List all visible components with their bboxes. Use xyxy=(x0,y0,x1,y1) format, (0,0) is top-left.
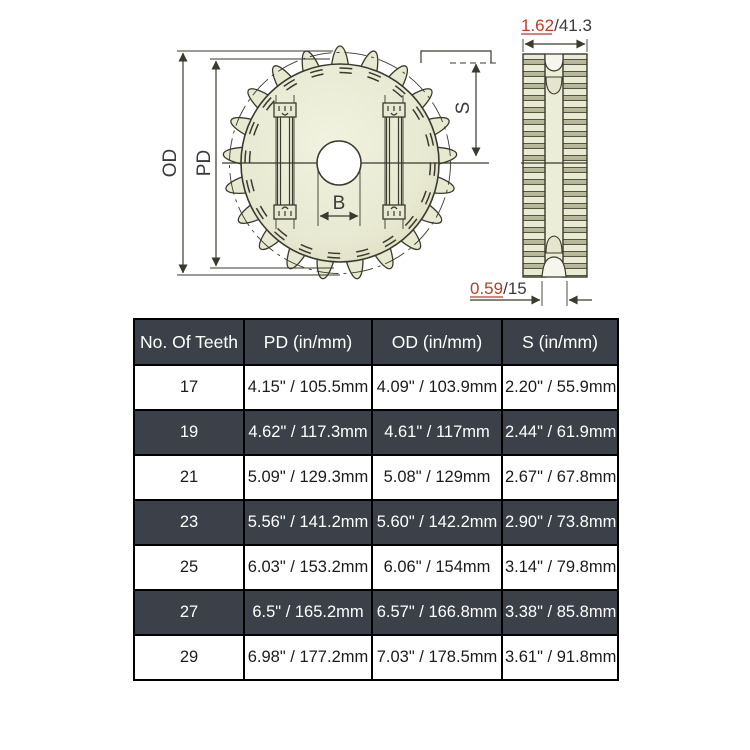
col-header-pd: PD (in/mm) xyxy=(244,319,372,365)
col-header-od: OD (in/mm) xyxy=(372,319,502,365)
groove-dim-inches: 0.59 xyxy=(470,279,503,298)
cell-teeth: 17 xyxy=(134,365,244,410)
cell-pd: 5.56" / 141.2mm xyxy=(244,500,372,545)
groove-dim-mm: /15 xyxy=(503,279,527,298)
front-view: OD PD B xyxy=(160,46,499,280)
cell-s: 3.38" / 85.8mm xyxy=(502,590,618,635)
cell-pd: 4.62" / 117.3mm xyxy=(244,410,372,455)
spec-table: No. Of Teeth PD (in/mm) OD (in/mm) S (in… xyxy=(133,318,619,681)
s-label: S xyxy=(453,102,474,115)
cell-pd: 6.5" / 165.2mm xyxy=(244,590,372,635)
cell-teeth: 25 xyxy=(134,545,244,590)
table-header-row: No. Of Teeth PD (in/mm) OD (in/mm) S (in… xyxy=(134,319,618,365)
tooth-row-right xyxy=(563,54,587,277)
side-view: 1.62/41.3 0.59/15 xyxy=(470,16,592,306)
cell-s: 2.44" / 61.9mm xyxy=(502,410,618,455)
cell-od: 4.09" / 103.9mm xyxy=(372,365,502,410)
col-header-teeth: No. Of Teeth xyxy=(134,319,244,365)
cell-pd: 6.03" / 153.2mm xyxy=(244,545,372,590)
cell-s: 2.90" / 73.8mm xyxy=(502,500,618,545)
cell-od: 5.60" / 142.2mm xyxy=(372,500,502,545)
table-row: 23 5.56" / 141.2mm 5.60" / 142.2mm 2.90"… xyxy=(134,500,618,545)
cell-od: 7.03" / 178.5mm xyxy=(372,635,502,680)
cell-od: 4.61" / 117mm xyxy=(372,410,502,455)
technical-drawing: OD PD B xyxy=(130,5,610,315)
cell-teeth: 19 xyxy=(134,410,244,455)
table-row: 21 5.09" / 129.3mm 5.08" / 129mm 2.67" /… xyxy=(134,455,618,500)
sprocket-spec-sheet: OD PD B xyxy=(0,0,750,750)
col-header-s: S (in/mm) xyxy=(502,319,618,365)
pd-label: PD xyxy=(194,150,215,176)
top-dimension-text: 1.62/41.3 xyxy=(521,16,592,35)
chain-plate xyxy=(421,51,491,63)
cell-od: 6.57" / 166.8mm xyxy=(372,590,502,635)
table-row: 19 4.62" / 117.3mm 4.61" / 117mm 2.44" /… xyxy=(134,410,618,455)
groove-notch-top xyxy=(545,54,563,71)
table-row: 17 4.15" / 105.5mm 4.09" / 103.9mm 2.20"… xyxy=(134,365,618,410)
table-row: 29 6.98" / 177.2mm 7.03" / 178.5mm 3.61"… xyxy=(134,635,618,680)
b-label: B xyxy=(333,193,346,214)
tooth-row-left xyxy=(523,54,545,277)
top-dim-mm: /41.3 xyxy=(554,16,592,35)
sprocket-drawing-svg: OD PD B xyxy=(130,5,610,315)
table-row: 27 6.5" / 165.2mm 6.57" / 166.8mm 3.38" … xyxy=(134,590,618,635)
cell-pd: 4.15" / 105.5mm xyxy=(244,365,372,410)
top-width-dimension: 1.62/41.3 xyxy=(521,16,592,52)
cell-teeth: 29 xyxy=(134,635,244,680)
groove-dimension-text: 0.59/15 xyxy=(470,279,527,298)
cell-pd: 6.98" / 177.2mm xyxy=(244,635,372,680)
bore-hole xyxy=(317,141,361,185)
cell-teeth: 23 xyxy=(134,500,244,545)
od-label: OD xyxy=(160,149,181,178)
cell-s: 2.67" / 67.8mm xyxy=(502,455,618,500)
top-dim-inches: 1.62 xyxy=(521,16,554,35)
cell-od: 6.06" / 154mm xyxy=(372,545,502,590)
cell-teeth: 27 xyxy=(134,590,244,635)
cell-s: 3.61" / 91.8mm xyxy=(502,635,618,680)
cell-teeth: 21 xyxy=(134,455,244,500)
cell-s: 2.20" / 55.9mm xyxy=(502,365,618,410)
groove-width-dimension: 0.59/15 xyxy=(470,279,592,306)
cell-s: 3.14" / 79.8mm xyxy=(502,545,618,590)
table-row: 25 6.03" / 153.2mm 6.06" / 154mm 3.14" /… xyxy=(134,545,618,590)
cell-pd: 5.09" / 129.3mm xyxy=(244,455,372,500)
cell-od: 5.08" / 129mm xyxy=(372,455,502,500)
